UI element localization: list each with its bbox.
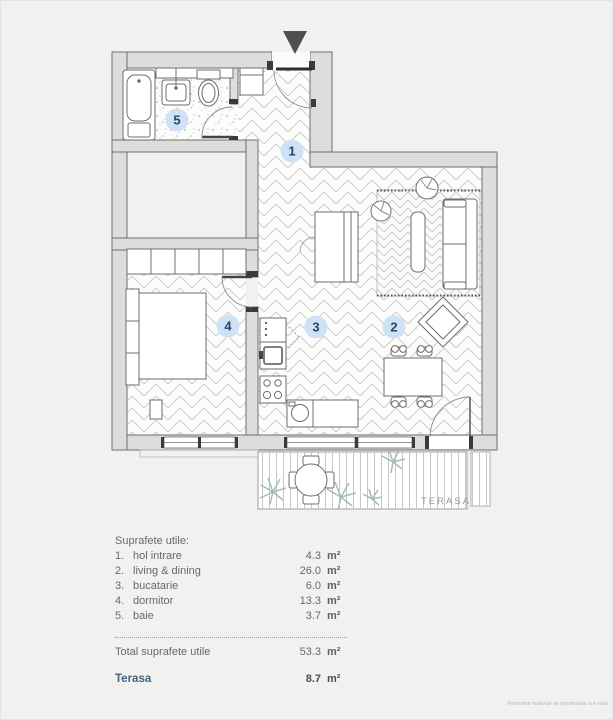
legend-item-value: 26.0 xyxy=(283,564,321,579)
legend-item-unit: m² xyxy=(327,549,351,564)
legend-total-row: Total suprafete utile 53.3 m² xyxy=(115,645,375,660)
floorplan-page: TERASA 1 2 3 4 5 Suprafete utile: 1. hol… xyxy=(0,0,613,720)
legend-row: 2. living & dining 26.0 m² xyxy=(115,564,375,579)
legend-row: 4. dormitor 13.3 m² xyxy=(115,594,375,609)
toilet xyxy=(197,70,220,106)
legend-item-unit: m² xyxy=(327,579,351,594)
legend-row: 1. hol intrare 4.3 m² xyxy=(115,549,375,564)
kitchen-sink xyxy=(259,342,286,369)
legend-item-num: 2. xyxy=(115,564,133,579)
room-label-3: 3 xyxy=(312,320,319,335)
stove xyxy=(260,376,286,403)
legend-item-value: 6.0 xyxy=(283,579,321,594)
legend-item-num: 4. xyxy=(115,594,133,609)
bed xyxy=(126,289,206,385)
washing-machine xyxy=(287,400,313,427)
legend-item-name: baie xyxy=(133,609,283,624)
legend-item-unit: m² xyxy=(327,564,351,579)
bedroom-stool xyxy=(150,400,162,419)
room-label-4: 4 xyxy=(224,319,232,334)
plant-pot-2 xyxy=(371,201,391,221)
legend-terasa-row: Terasa 8.7 m² xyxy=(115,672,375,687)
room-label-2: 2 xyxy=(390,320,397,335)
plant-pot-1 xyxy=(416,177,438,199)
windows xyxy=(164,437,412,448)
legend-title: Suprafete utile: xyxy=(115,533,375,549)
terasa-value: 8.7 xyxy=(283,672,321,687)
wardrobe xyxy=(127,249,246,274)
window-sill-ledge xyxy=(140,450,258,457)
room-label-5: 5 xyxy=(173,113,180,128)
total-value: 53.3 xyxy=(283,645,321,660)
legend-item-unit: m² xyxy=(327,609,351,624)
fridge xyxy=(260,318,286,342)
bathtub xyxy=(123,70,155,140)
terasa-unit: m² xyxy=(327,672,340,687)
coffee-table xyxy=(411,212,425,272)
legend-separator xyxy=(115,637,347,638)
legend-item-value: 3.7 xyxy=(283,609,321,624)
legend-item-value: 13.3 xyxy=(283,594,321,609)
entrance-arrow-icon xyxy=(283,31,307,54)
legend: Suprafete utile: 1. hol intrare 4.3 m² 2… xyxy=(115,533,375,687)
sofa xyxy=(443,199,477,289)
legend-row: 3. bucatarie 6.0 m² xyxy=(115,579,375,594)
hall-cabinet xyxy=(240,68,263,95)
legend-row: 5. baie 3.7 m² xyxy=(115,609,375,624)
footer-note: Prezentul material de prezentare are car… xyxy=(508,701,608,707)
legend-item-num: 3. xyxy=(115,579,133,594)
kitchen-counter xyxy=(313,400,358,427)
legend-item-num: 1. xyxy=(115,549,133,564)
legend-item-num: 5. xyxy=(115,609,133,624)
terasa-label: Terasa xyxy=(115,672,283,687)
total-unit: m² xyxy=(327,645,340,660)
floorplan-drawing: TERASA 1 2 3 4 5 xyxy=(0,0,613,530)
legend-item-value: 4.3 xyxy=(283,549,321,564)
legend-item-name: dormitor xyxy=(133,594,283,609)
terrace-label: TERASA xyxy=(421,496,471,507)
legend-item-name: bucatarie xyxy=(133,579,283,594)
room-label-1: 1 xyxy=(288,144,295,159)
legend-item-name: living & dining xyxy=(133,564,283,579)
total-label: Total suprafete utile xyxy=(115,645,283,660)
legend-item-name: hol intrare xyxy=(133,549,283,564)
legend-item-unit: m² xyxy=(327,594,351,609)
